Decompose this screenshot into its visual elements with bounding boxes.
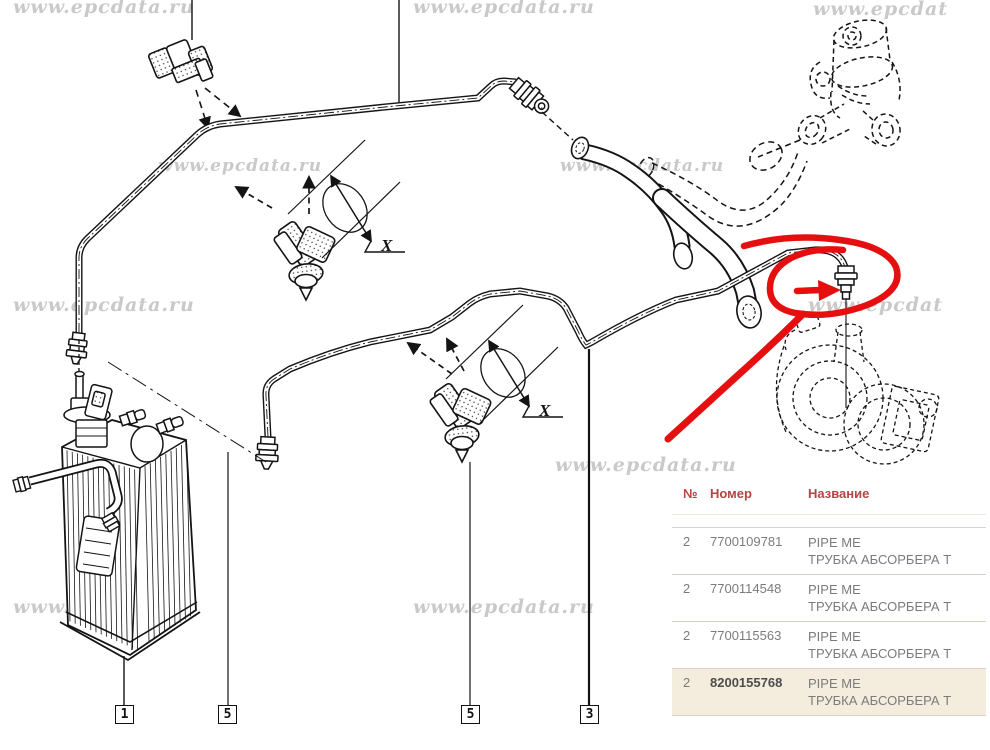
header-num: № [683, 486, 710, 501]
part-name-ru: ТРУБКА АБСОРБЕРА Т [808, 645, 986, 662]
part-callout-box-5b[interactable]: 5 [461, 705, 480, 724]
part-name-ru: ТРУБКА АБСОРБЕРА Т [808, 598, 986, 615]
red-annotation-arrow-shaft [797, 290, 820, 291]
purge-valve-drawing [793, 16, 903, 150]
part-callout-box-1[interactable]: 1 [115, 705, 134, 724]
table-row[interactable]: 2 7700115563 PIPE ME ТРУБКА АБСОРБЕРА Т [672, 622, 986, 669]
red-annotation-tail [668, 314, 803, 439]
epc-diagram-page: www.epcdata.ru www.epcdata.ru www.epcdat… [0, 0, 990, 750]
parts-table-header: № Номер Название [672, 486, 986, 501]
table-row-highlighted[interactable]: 2 8200155768 PIPE ME ТРУБКА АБСОРБЕРА Т [672, 669, 986, 716]
cell-part-number: 7700109781 [710, 534, 808, 574]
part-callout-box-3[interactable]: 3 [580, 705, 599, 724]
divider [672, 514, 986, 515]
pipe-clip-2 [429, 382, 492, 462]
part-name-en: PIPE ME [808, 675, 986, 692]
callout-x1-label: X [380, 236, 393, 255]
part-name-en: PIPE ME [808, 628, 986, 645]
throttle-body-drawing [776, 313, 939, 464]
red-annotation [668, 238, 897, 439]
cell-part-number: 7700115563 [710, 628, 808, 668]
part-leader-lines [124, 349, 589, 705]
cell-part-name: PIPE ME ТРУБКА АБСОРБЕРА Т [808, 628, 986, 668]
table-row[interactable]: 2 7700109781 PIPE ME ТРУБКА АБСОРБЕРА Т [672, 528, 986, 575]
part-name-en: PIPE ME [808, 581, 986, 598]
header-number: Номер [710, 486, 808, 501]
table-row[interactable]: 2 7700114548 PIPE ME ТРУБКА АБСОРБЕРА Т [672, 575, 986, 622]
cell-part-name: PIPE ME ТРУБКА АБСОРБЕРА Т [808, 581, 986, 621]
pipe-clip-top [148, 39, 213, 83]
clip-1-install-arrows [236, 177, 309, 214]
parts-table: № Номер Название 2 7700109781 PIPE ME ТР… [672, 486, 986, 716]
pipe-lower [255, 250, 857, 470]
cell-qty: 2 [683, 675, 710, 715]
cell-part-name: PIPE ME ТРУБКА АБСОРБЕРА Т [808, 675, 986, 715]
top-leader-lines [192, 0, 399, 103]
part-name-ru: ТРУБКА АБСОРБЕРА Т [808, 551, 986, 568]
callout-x2-label: X [538, 401, 551, 420]
part-callout-box-5a[interactable]: 5 [218, 705, 237, 724]
part-name-ru: ТРУБКА АБСОРБЕРА Т [808, 692, 986, 709]
cell-qty: 2 [683, 581, 710, 621]
cell-qty: 2 [683, 628, 710, 668]
cell-part-number: 8200155768 [710, 675, 808, 715]
red-annotation-circle [744, 238, 897, 315]
pipe-clip-1 [273, 220, 336, 300]
cell-part-number: 7700114548 [710, 581, 808, 621]
clip-2-install-arrows [408, 339, 464, 374]
pipe-upper [65, 75, 573, 371]
cell-part-name: PIPE ME ТРУБКА АБСОРБЕРА Т [808, 534, 986, 574]
cell-qty: 2 [683, 534, 710, 574]
header-name: Название [808, 486, 986, 501]
part-name-en: PIPE ME [808, 534, 986, 551]
